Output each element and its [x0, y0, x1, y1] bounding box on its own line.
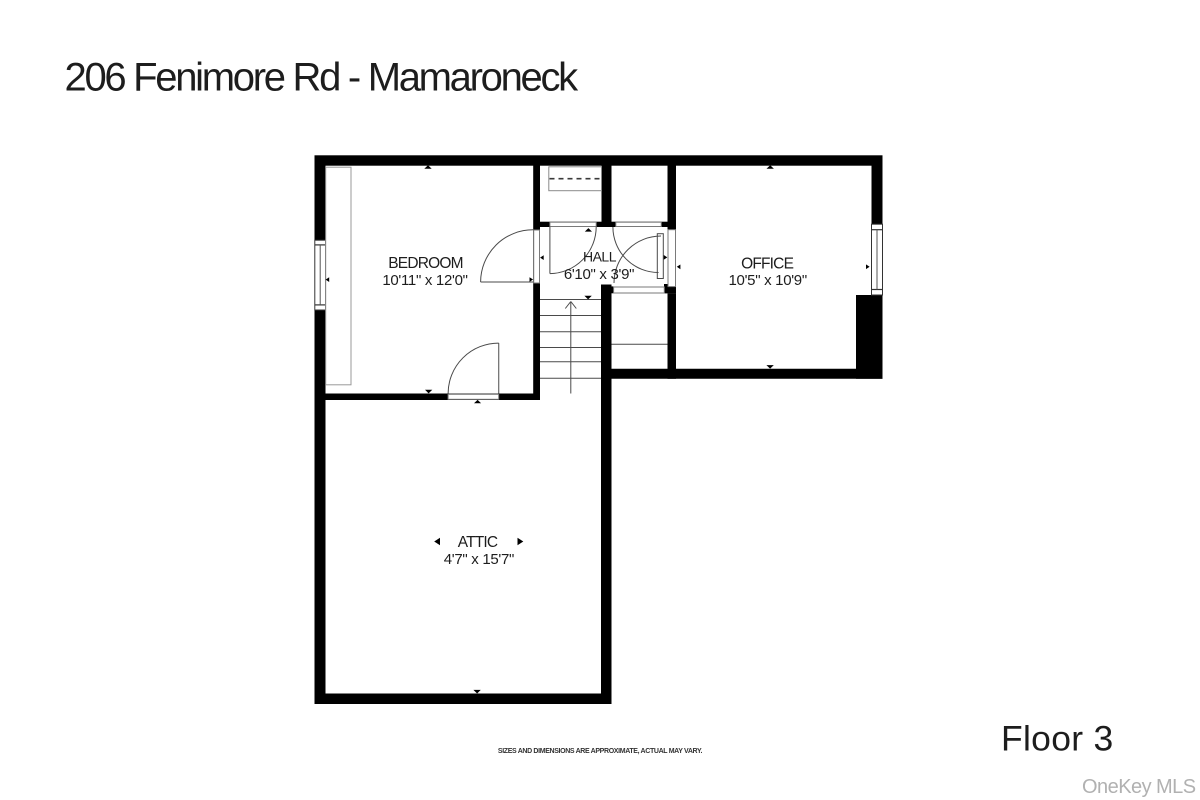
svg-text:HALL: HALL [583, 248, 617, 264]
svg-text:Floor 3: Floor 3 [1001, 719, 1114, 759]
svg-text:BEDROOM: BEDROOM [388, 255, 463, 272]
svg-text:OneKey MLS: OneKey MLS [1082, 776, 1196, 798]
svg-text:10'11" x 12'0": 10'11" x 12'0" [382, 272, 467, 289]
svg-text:4'7" x 15'7": 4'7" x 15'7" [444, 551, 514, 568]
svg-text:OFFICE: OFFICE [741, 255, 793, 272]
svg-text:SIZES AND DIMENSIONS ARE APPRO: SIZES AND DIMENSIONS ARE APPROXIMATE, AC… [498, 748, 703, 755]
svg-text:6'10" x 3'9": 6'10" x 3'9" [564, 266, 634, 283]
svg-text:ATTIC: ATTIC [458, 534, 498, 551]
svg-text:10'5" x 10'9": 10'5" x 10'9" [729, 272, 807, 289]
svg-text:206 Fenimore Rd - Mamaroneck: 206 Fenimore Rd - Mamaroneck [65, 55, 580, 99]
